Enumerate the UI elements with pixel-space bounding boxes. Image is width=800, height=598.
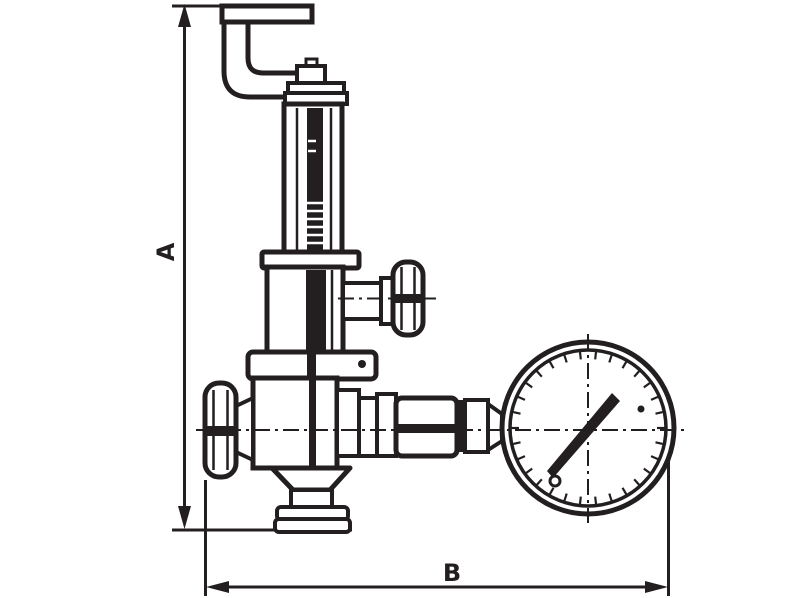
outlet-boss — [337, 390, 359, 456]
body-divider — [309, 380, 316, 466]
flange-bolt-dot — [358, 360, 366, 368]
side-valve — [338, 262, 436, 335]
dimension-b-label: B — [443, 559, 461, 587]
arrowhead-right-icon — [645, 581, 668, 593]
side-valve-stem — [343, 283, 383, 319]
outlet-train — [359, 394, 514, 456]
adjusting-cap — [285, 59, 347, 104]
dimension-a-label: A — [152, 242, 180, 261]
gauge-set-dot — [638, 406, 645, 413]
drawing-canvas: A B — [0, 0, 800, 598]
valve-body-block — [253, 378, 337, 468]
exhaust-pipe-outlet — [222, 6, 312, 22]
gauge-tick — [513, 442, 520, 444]
bonnet-stem — [306, 270, 326, 353]
valve-body — [253, 378, 359, 532]
gauge-tick — [580, 497, 581, 505]
gauge-tick — [656, 442, 663, 444]
gauge-tick — [656, 412, 663, 414]
needle-counterweight-ring — [550, 476, 560, 486]
spring-housing — [284, 104, 342, 254]
arrowhead-left-icon — [206, 581, 229, 593]
bottom-flange-lower — [275, 519, 350, 532]
valve-technical-drawing: A B — [0, 0, 800, 598]
body-taper — [272, 468, 350, 490]
gauge-tick — [595, 352, 596, 360]
gauge-tick — [513, 412, 520, 414]
union-collar — [377, 394, 396, 456]
adapter-block — [465, 400, 488, 452]
flange-divider — [307, 354, 316, 377]
union-spacer — [359, 398, 377, 456]
arrowhead-down-icon — [178, 506, 191, 529]
union-hub-band — [398, 424, 455, 433]
valve-stem — [307, 108, 323, 252]
gauge-tick — [595, 497, 596, 505]
body-top-flange — [248, 352, 376, 379]
gauge-tick — [580, 352, 581, 360]
